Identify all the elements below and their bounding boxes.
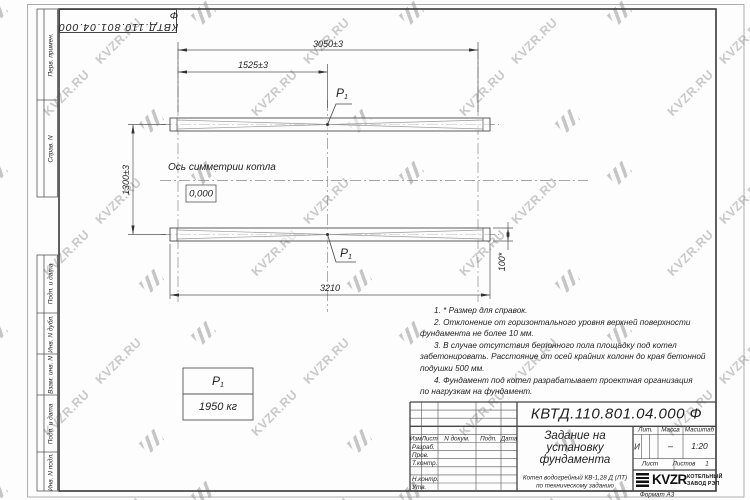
watermark-logo-icon <box>347 269 372 294</box>
watermark-logo-icon <box>607 1 632 26</box>
watermark-text: KVZR.RU <box>301 175 353 227</box>
load-symbol: P <box>212 374 220 388</box>
watermark-logo-icon <box>347 109 372 134</box>
note-line: подушки 500 мм. <box>420 363 717 375</box>
company-name-line2: ЗАВОД РЭП <box>687 481 719 487</box>
watermark-logo-icon <box>191 481 216 500</box>
scale-header: Масштаб <box>685 427 714 434</box>
watermark-logo-icon <box>0 1 8 26</box>
watermark-logo-icon <box>347 429 372 454</box>
watermark-logo-icon <box>399 161 424 186</box>
watermark-text: KVZR.RU <box>717 175 750 227</box>
load-subscript: 1 <box>220 382 224 389</box>
watermark-logo-icon <box>139 269 164 294</box>
row-label-utv: Утв. <box>412 484 426 491</box>
watermark-logo-icon <box>0 481 8 500</box>
watermark-text: KVZR.RU <box>457 67 509 119</box>
load-label-bottom: P1 <box>340 244 352 262</box>
watermark-layer: KVZR.RUKVZR.RUKVZR.RUKVZR.RUKVZR.RUKVZR.… <box>0 0 750 500</box>
note-line: 1. * Размер для справок. <box>420 305 717 317</box>
dim-3210: 3210 <box>320 283 340 293</box>
level-mark-value: 0,000 <box>189 188 213 199</box>
strip-label-vzam-inv: Взам. инв. N <box>48 356 55 394</box>
notes-block: 1. * Размер для справок. 2. Отклонение о… <box>420 305 717 398</box>
col-header-izm: Изм <box>410 435 422 442</box>
load-subscript: 1 <box>344 94 348 101</box>
watermark-text: KVZR.RU <box>509 495 561 500</box>
watermark-text: KVZR.RU <box>717 335 750 387</box>
strip-label-podp-data-1: Подп. и дата <box>48 264 55 305</box>
title-designation: КВТД.110.801.04.000 Ф <box>531 406 702 423</box>
lit-header: Лит. <box>638 427 653 434</box>
watermark-text: KVZR.RU <box>93 335 145 387</box>
watermark-logo-icon <box>0 161 8 186</box>
watermark-logo-icon <box>139 429 164 454</box>
doc-title-line1: Задание на <box>544 430 605 442</box>
watermark-logo-icon <box>555 109 580 134</box>
mass-header: Масса <box>661 427 680 434</box>
note-line: забетонировать. Расстояние от осей крайн… <box>420 351 717 363</box>
watermark-text: KVZR.RU <box>717 495 750 500</box>
corner-designation-stamp: КВТД.110.801.04.000 Ф <box>59 9 177 33</box>
watermark-logo-icon <box>0 321 8 346</box>
row-label-prov: Пров. <box>412 452 429 459</box>
watermark-text: KVZR.RU <box>93 495 145 500</box>
kvzr-logo-emblem <box>636 473 649 488</box>
col-header-data: Дата <box>501 435 518 442</box>
dim-1300: 1300±3 <box>121 165 131 195</box>
watermark-text: KVZR.RU <box>249 387 301 439</box>
strip-label-podp-data-2: Подп. и дата <box>48 403 55 444</box>
dim-3050: 3050±3 <box>313 39 343 49</box>
watermark-text: KVZR.RU <box>665 227 717 279</box>
dim-1525: 1525±3 <box>238 60 268 70</box>
format-note: Формат А3 <box>640 491 674 498</box>
sheet-label: Лист <box>642 461 658 468</box>
note-line: 4. Фундамент под котел разрабатывает про… <box>420 375 717 387</box>
watermark-text: KVZR.RU <box>665 67 717 119</box>
load-label-top: P1 <box>336 84 348 102</box>
note-line: 3. В случае отсутствия бетонного пола пл… <box>420 340 717 352</box>
col-header-list: Лист <box>422 435 438 442</box>
doc-title-line3: фундамента <box>540 454 611 466</box>
corner-designation-text: КВТД.110.801.04.000 Ф <box>58 9 178 33</box>
watermark-logo-icon <box>607 161 632 186</box>
watermark-logo-icon <box>139 109 164 134</box>
load-symbol: P <box>336 86 344 100</box>
load-symbol: P <box>340 246 348 260</box>
kvzr-logo-word: KVZR <box>652 472 687 487</box>
watermark-text: KVZR.RU <box>249 227 301 279</box>
sheets-value: 1 <box>705 461 709 468</box>
dim-100: 100* <box>497 253 507 272</box>
watermark-text: KVZR.RU <box>301 335 353 387</box>
watermark-logo-icon <box>191 1 216 26</box>
watermark-logo-icon <box>399 1 424 26</box>
symmetry-axis-label: Ось симметрии котла <box>168 162 276 173</box>
note-line: 2. Отклонение от горизонтального уровня … <box>420 317 717 329</box>
strip-label-inv-dubl: Инв. N дубл. <box>48 315 55 353</box>
watermark-text: KVZR.RU <box>509 15 561 67</box>
note-line: по нагрузкам на фундамент. <box>420 386 717 398</box>
row-label-razrab: Разраб. <box>412 444 435 451</box>
watermark-logo-icon <box>555 269 580 294</box>
drawing-sheet: KVZR.RUKVZR.RUKVZR.RUKVZR.RUKVZR.RUKVZR.… <box>0 0 750 500</box>
watermark-logo-icon <box>191 321 216 346</box>
watermark-text: KVZR.RU <box>301 495 353 500</box>
col-header-ndoc: N докум. <box>444 435 469 442</box>
load-table-value: 1950 кг <box>199 401 237 413</box>
row-label-nkontr: Н.контр. <box>412 476 439 483</box>
lit-value: И <box>634 442 640 451</box>
col-header-podp: Подп. <box>480 435 497 442</box>
row-label-tkontr: Т.контр. <box>412 460 437 467</box>
watermark-text: KVZR.RU <box>93 175 145 227</box>
scale-value: 1:20 <box>691 441 708 451</box>
watermark-text: KVZR.RU <box>717 15 750 67</box>
mass-value: – <box>668 441 673 451</box>
company-name-line1: КОТЕЛЬНЫЙ <box>687 474 723 480</box>
doc-title-line2: установку <box>546 442 603 454</box>
note-line: фундамента не более 10 мм. <box>420 328 717 340</box>
load-subscript: 1 <box>348 254 352 261</box>
watermark-text: KVZR.RU <box>509 175 561 227</box>
object-line1: Котел водогрейный КВ-1,28 Д (ЛТ) <box>523 474 627 481</box>
load-table-symbol: P1 <box>212 372 224 390</box>
strip-label-inv-podl: Инв. N подл. <box>48 453 55 491</box>
strip-label-sprav-n: Справ. N <box>48 135 55 162</box>
strip-label-perv-primen: Перв. примен. <box>48 33 55 76</box>
sheets-label: Листов <box>673 461 696 468</box>
object-line2: по техническому заданию <box>536 482 614 489</box>
watermark-text: KVZR.RU <box>249 67 301 119</box>
